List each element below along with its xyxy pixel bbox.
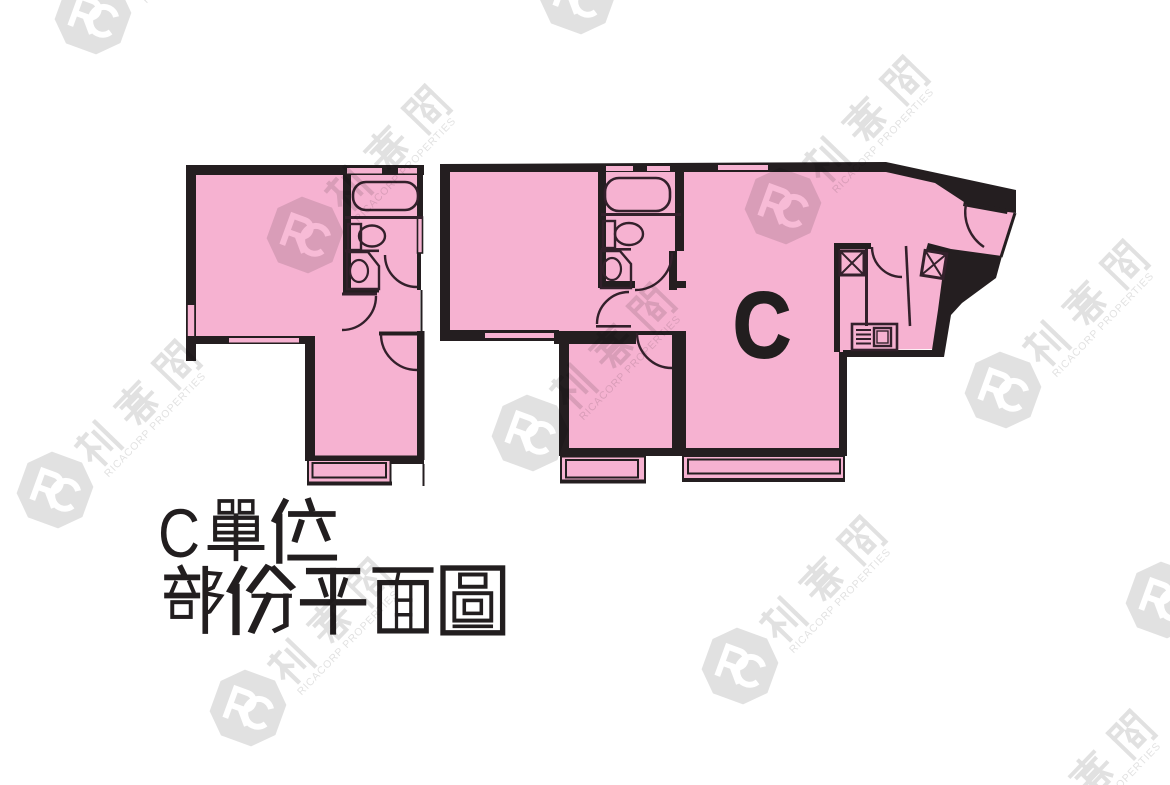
svg-text:C: C [733,273,791,377]
svg-text:C: C [158,495,200,572]
